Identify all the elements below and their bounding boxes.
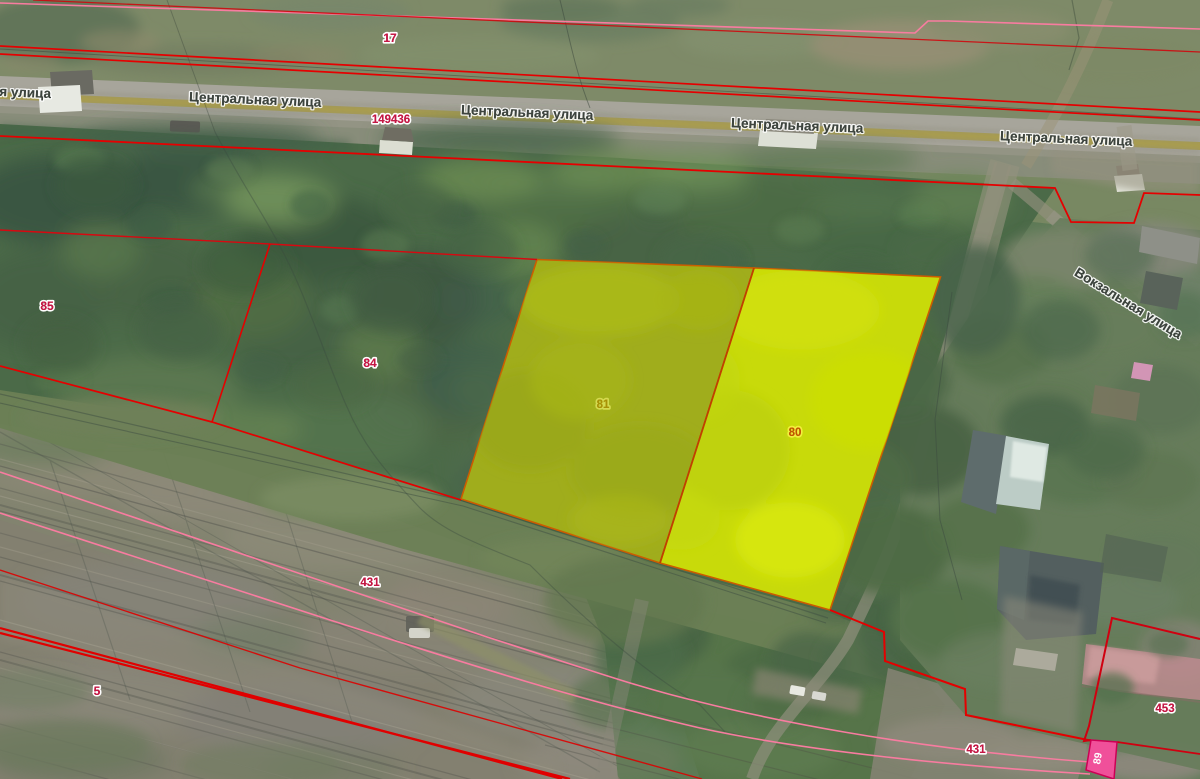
- svg-text:я улица: я улица: [0, 84, 52, 101]
- svg-text:453: 453: [1155, 703, 1174, 715]
- svg-text:85: 85: [40, 299, 54, 313]
- svg-text:89: 89: [1091, 752, 1105, 766]
- svg-text:5: 5: [94, 684, 101, 698]
- svg-text:80: 80: [789, 427, 802, 439]
- svg-text:431: 431: [360, 577, 380, 589]
- svg-text:81: 81: [597, 399, 610, 411]
- svg-text:431: 431: [966, 744, 986, 756]
- svg-text:84: 84: [363, 356, 377, 370]
- svg-text:17: 17: [383, 31, 397, 45]
- svg-text:149436: 149436: [372, 114, 410, 126]
